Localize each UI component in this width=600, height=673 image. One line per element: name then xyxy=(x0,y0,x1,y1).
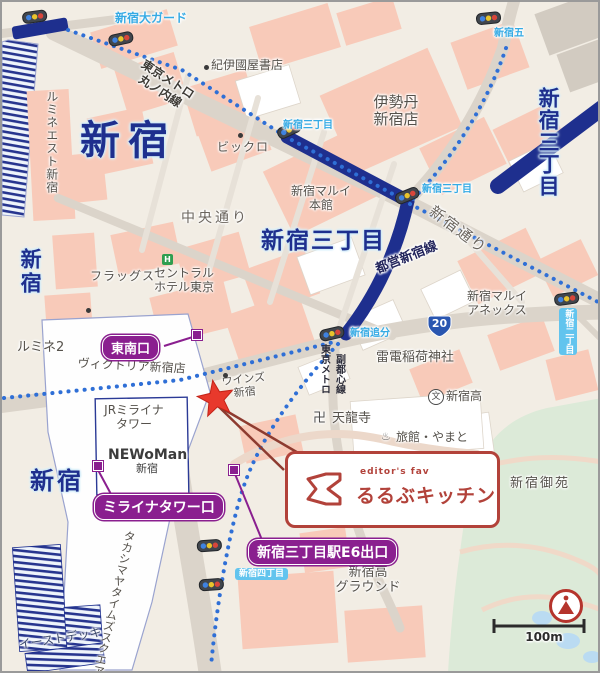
place-kinokuniya: 紀伊國屋書店 xyxy=(211,59,283,73)
place-shinjuku-high: 新宿高 xyxy=(446,390,482,404)
hotel-icon: H xyxy=(162,254,173,265)
place-lumine-est: ルミネエスト新宿 xyxy=(44,90,58,194)
intersection-nichome: 新宿二丁目 xyxy=(559,308,577,355)
place-newoman: NEWoMan 新宿 xyxy=(108,447,186,476)
e6-exit-marker xyxy=(229,465,239,475)
intersection-yonchome: 新宿四丁目 xyxy=(235,568,288,580)
station-label-sanchome: 新宿三丁目 xyxy=(261,228,386,254)
onsen-icon: ♨ xyxy=(381,431,391,444)
place-raiden-shrine: 雷電稲荷神社 xyxy=(376,351,454,366)
shinjuku-access-map: 新宿 新宿 新宿 新宿三丁目 新宿三丁目 新宿大ガード 新宿五 新宿三丁目 新宿… xyxy=(0,0,600,673)
temple-icon: 卍 xyxy=(313,412,326,427)
badge-e6-exit: 新宿三丁目駅E6出口 xyxy=(248,539,397,565)
place-bicqlo: ビックロ xyxy=(217,141,269,155)
place-high-ground: 新宿高 グラウンド xyxy=(328,566,408,596)
place-ryokan-yamato: 旅館・やまと xyxy=(396,431,468,445)
place-marui-honkan: 新宿マルイ 本館 xyxy=(286,185,356,213)
map-base-graphics xyxy=(2,2,598,671)
place-marui-annex: 新宿マルイ アネックス xyxy=(461,290,533,318)
poi-dot xyxy=(238,133,243,138)
chuo-dori-label: 中央通り xyxy=(181,210,249,226)
route-20-number: 20 xyxy=(428,317,451,330)
intersection-sanchome: 新宿三丁目 xyxy=(422,184,472,196)
poi-dot xyxy=(86,308,91,313)
miraina-exit-marker xyxy=(93,461,103,471)
intersection-sanchome-west: 新宿三丁目 xyxy=(283,120,333,132)
intersection-oiwake: 新宿追分 xyxy=(350,328,390,340)
place-jr-miraina-tower: JRミライナ タワー xyxy=(98,404,170,432)
place-flags: フラッグス xyxy=(90,270,155,284)
poi-dot xyxy=(223,373,228,378)
callout-tagline: editor's fav xyxy=(360,467,430,477)
place-lumine2: ルミネ2 xyxy=(17,341,64,356)
destination-callout: editor's fav るるぶキッチン xyxy=(285,451,500,528)
southeast-exit-marker xyxy=(192,330,202,340)
scale-label: 100m xyxy=(514,630,574,644)
intersection-oguard: 新宿大ガード xyxy=(115,12,187,26)
place-isetan: 伊勢丹 新宿店 xyxy=(364,94,428,129)
place-tenryuji: 天龍寺 xyxy=(332,412,371,427)
place-central-hotel: セントラル ホテル東京 xyxy=(154,267,214,295)
fukutoshin-line-label: 東京メトロ 副都心線 xyxy=(318,344,344,398)
station-label-shinjuku-nw: 新宿 xyxy=(80,118,176,164)
poi-dot xyxy=(204,65,209,70)
rurubu-kitchen-logo xyxy=(300,467,348,511)
station-label-shinjuku-south: 新宿 xyxy=(30,468,84,496)
badge-southeast-exit: 東南口 xyxy=(102,335,159,360)
place-gyoen: 新宿御苑 xyxy=(510,477,570,492)
park-marker-icon xyxy=(551,591,582,622)
callout-title: るるぶキッチン xyxy=(356,481,496,508)
station-label-shinjuku-west: 新宿 xyxy=(18,248,42,296)
school-icon: 文 xyxy=(428,389,444,405)
badge-miraina-tower-exit: ミライナタワー口 xyxy=(94,494,224,520)
station-label-sanchome-vertical: 新宿三丁目 xyxy=(536,87,560,197)
intersection-shinjuku5: 新宿五 xyxy=(494,28,524,40)
